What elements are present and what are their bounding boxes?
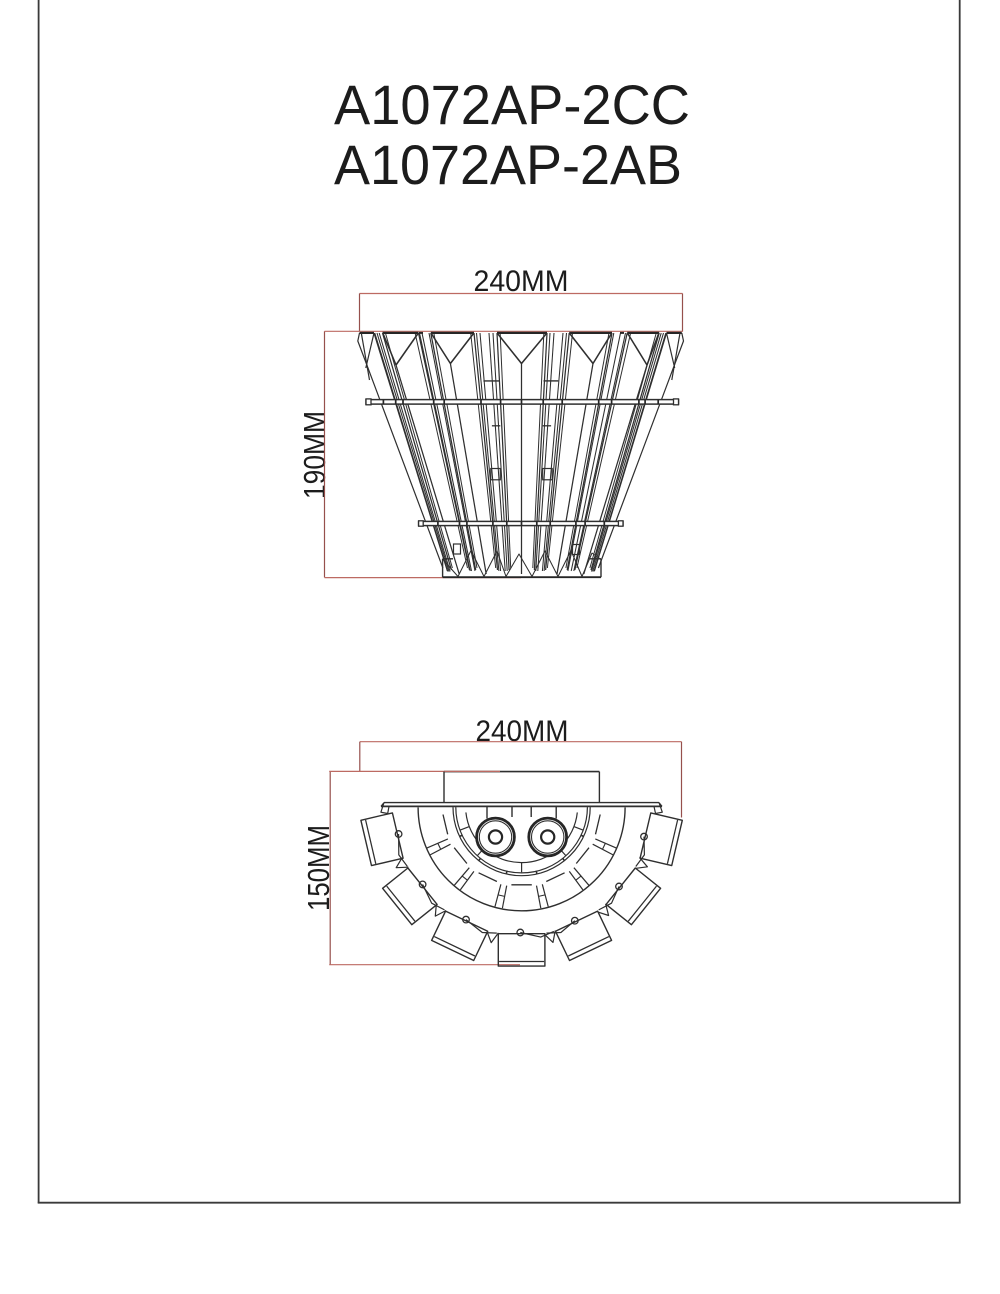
svg-text:A1072AP-2AB: A1072AP-2AB bbox=[334, 133, 682, 196]
svg-text:240MM: 240MM bbox=[476, 715, 569, 748]
svg-text:150MM: 150MM bbox=[302, 825, 336, 911]
svg-text:190MM: 190MM bbox=[298, 411, 332, 499]
svg-text:A1072AP-2CC: A1072AP-2CC bbox=[334, 73, 690, 136]
